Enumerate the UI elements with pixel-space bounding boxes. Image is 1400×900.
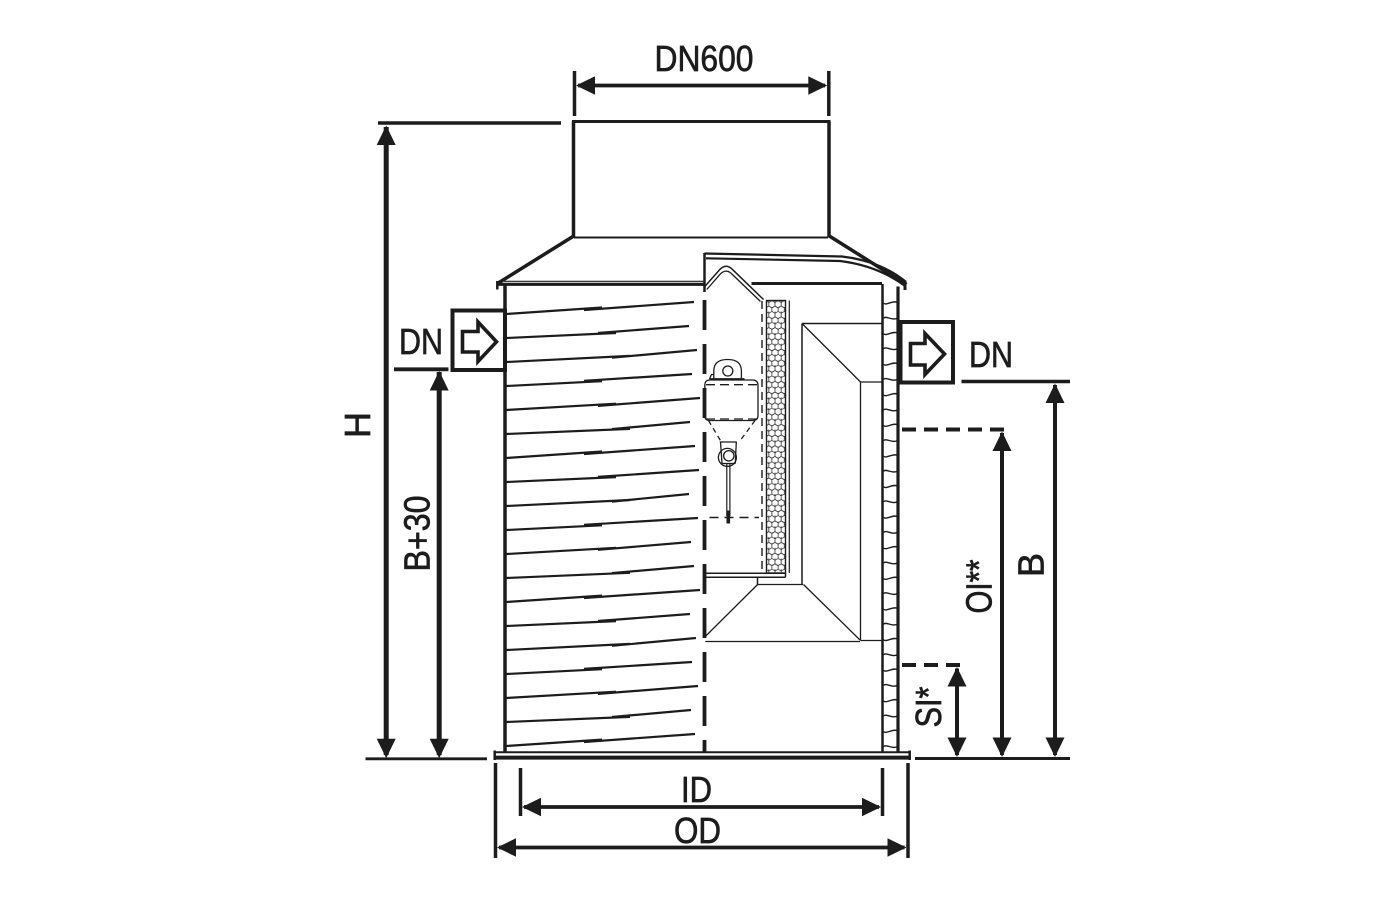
svg-text:OI**: OI** <box>959 560 1000 614</box>
svg-text:DN600: DN600 <box>654 38 753 79</box>
svg-text:B+30: B+30 <box>397 496 438 572</box>
svg-text:H: H <box>337 412 378 438</box>
svg-text:DN: DN <box>399 321 443 362</box>
svg-text:SI*: SI* <box>908 687 949 728</box>
svg-text:OD: OD <box>674 810 721 851</box>
svg-text:DN: DN <box>969 334 1013 375</box>
svg-text:B: B <box>1011 553 1052 577</box>
svg-text:ID: ID <box>681 769 712 810</box>
